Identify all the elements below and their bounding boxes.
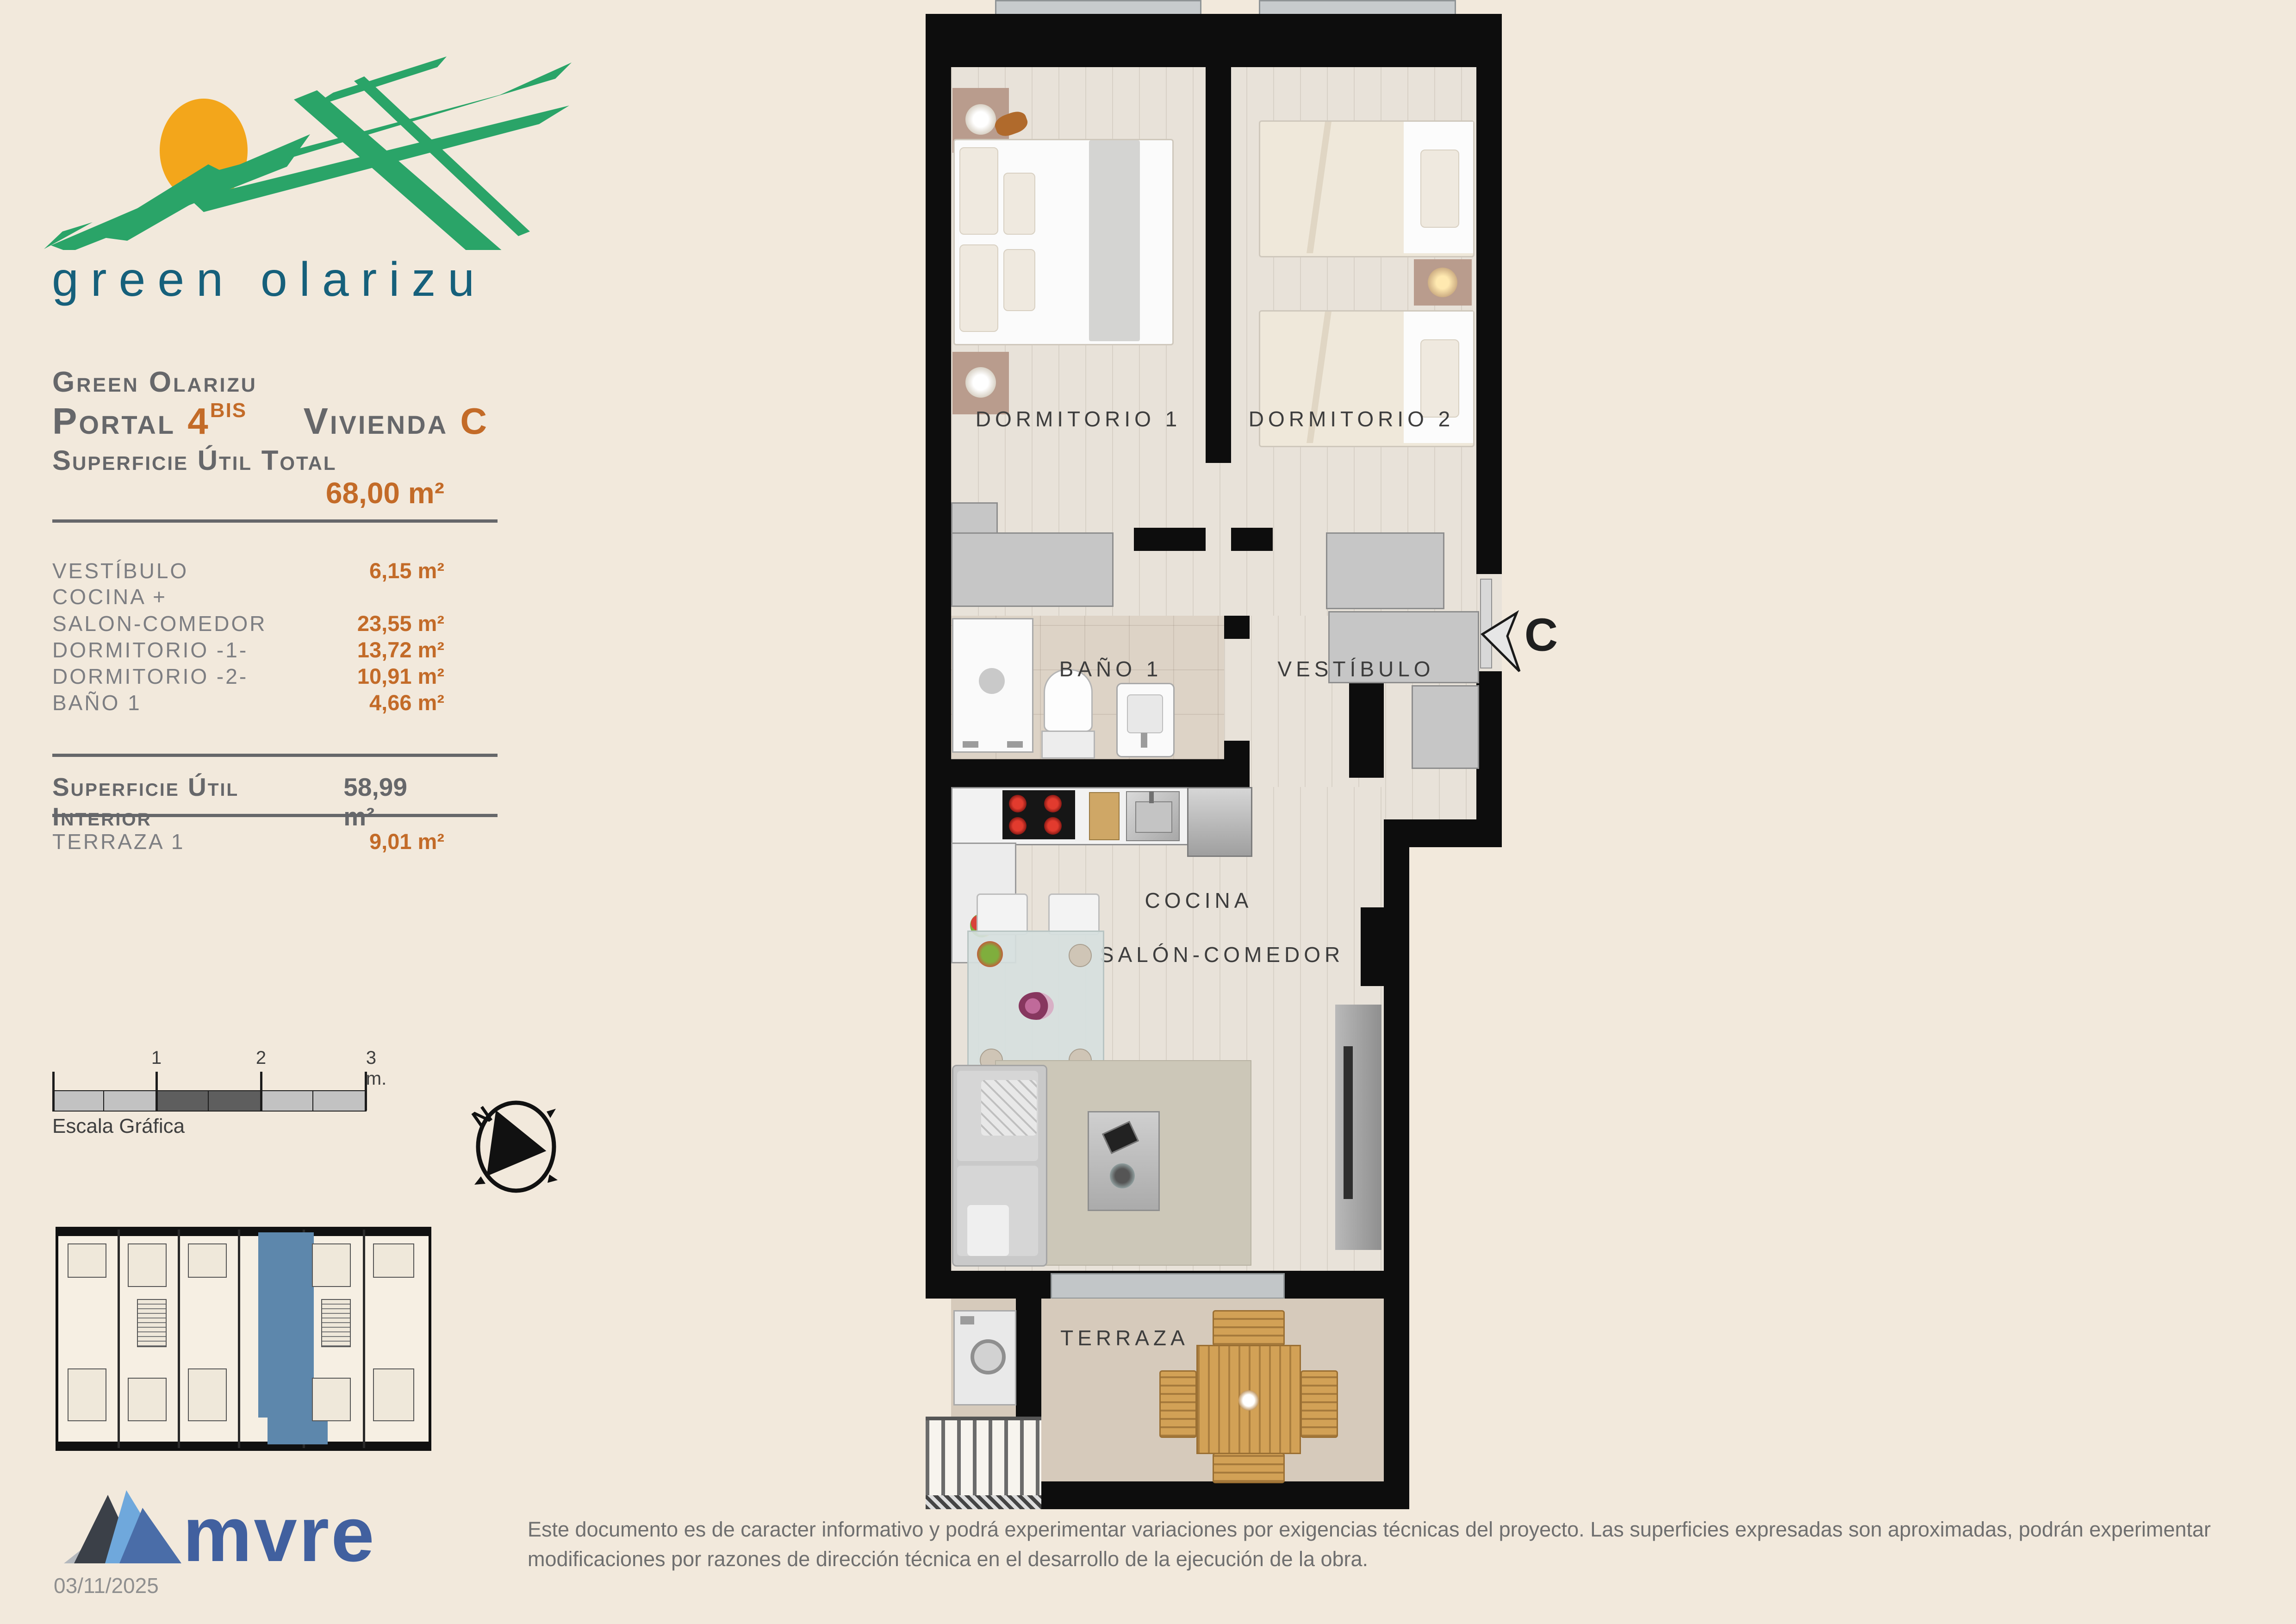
room-label-cocina: COCINA [1145, 888, 1253, 913]
surface-row: SALON-COMEDOR23,55 m² [52, 611, 444, 636]
terrace-chair [1213, 1453, 1285, 1483]
dining-chair [1048, 893, 1100, 935]
wall [1224, 741, 1250, 759]
wall [1476, 671, 1502, 819]
surface-total-value: 68,00 m² [259, 476, 444, 510]
washing-machine [953, 1310, 1016, 1405]
wall [1349, 676, 1384, 778]
scale-bar: 1 2 3 m. [52, 1072, 372, 1113]
terrace-chair [1213, 1310, 1285, 1346]
mvre-wordmark: mvre [183, 1490, 376, 1579]
portal-label: Portal [52, 400, 175, 442]
tv-unit [1335, 1005, 1381, 1250]
scale-tick-1: 1 [151, 1048, 162, 1068]
wall [1231, 528, 1273, 551]
terrace-chair [1159, 1370, 1197, 1438]
cushion [967, 1205, 1009, 1256]
mvre-logo-icon [60, 1488, 185, 1567]
wall [1384, 819, 1502, 847]
cutting-board [1089, 792, 1120, 840]
floorplan-sheet: { "colors":{"background":"#f2e9dc","acce… [0, 0, 2296, 1624]
room-label-dormitorio2: DORMITORIO 2 [1249, 406, 1455, 431]
wall [1016, 1481, 1409, 1509]
surface-interior-row: Superficie Útil Interior 58,99 m² [52, 772, 444, 831]
terrace-window [1051, 1273, 1285, 1299]
surface-terrace-row: TERRAZA 1 9,01 m² [52, 829, 444, 854]
divider [52, 519, 498, 523]
entrance-arrow-icon [1479, 610, 1530, 675]
wall [926, 14, 1502, 67]
room-label-terraza: TERRAZA [1060, 1325, 1189, 1350]
scale-caption: Escala Gráfica [52, 1115, 185, 1138]
plaid-blanket [981, 1080, 1037, 1136]
scale-tick-3: 3 m. [366, 1048, 386, 1089]
bowl [1110, 1163, 1135, 1188]
date: 03/11/2025 [54, 1573, 159, 1598]
wall [1384, 1299, 1409, 1509]
divider [52, 754, 498, 757]
portal-sup: BIS [210, 399, 247, 422]
dining-chair [977, 893, 1028, 935]
hall-cabinet [1412, 685, 1479, 769]
floor-plan: DORMITORIO 1 DORMITORIO 2 BAÑO 1 VESTÍBU… [926, 0, 1574, 1532]
surface-row: DORMITORIO -1-13,72 m² [52, 637, 444, 662]
wardrobe [1326, 532, 1444, 609]
wall-pillar [1361, 907, 1384, 986]
terrace-chair [1300, 1370, 1338, 1438]
coffee-table [1088, 1111, 1160, 1211]
surface-row: COCINA + [52, 584, 444, 609]
wardrobe [951, 502, 998, 535]
divider [52, 814, 498, 817]
single-bed [1259, 120, 1475, 257]
portal-number: 4 [187, 400, 210, 442]
disclaimer-text: Este documento es de caracter informativ… [528, 1515, 2268, 1574]
wall [926, 759, 1250, 787]
wall [1134, 528, 1206, 551]
shower [952, 618, 1033, 753]
nightstand [952, 352, 1009, 414]
wall [1476, 14, 1502, 574]
vivienda-letter: C [460, 400, 489, 442]
surface-row: BAÑO 14,66 m² [52, 690, 444, 715]
compass: N [465, 1095, 567, 1197]
logo-wordmark: green olarizu [52, 252, 486, 307]
railing-base [926, 1495, 1041, 1509]
terrace-table [1196, 1345, 1301, 1454]
surface-row: VESTÍBULO6,15 m² [52, 558, 444, 583]
tv-screen [1344, 1046, 1353, 1199]
surface-total-label: Superficie Útil Total [52, 444, 337, 476]
highlighted-unit [258, 1232, 314, 1418]
scale-tick-2: 2 [256, 1048, 266, 1068]
hob [1002, 790, 1075, 839]
nightstand [1414, 259, 1472, 306]
sofa [952, 1065, 1047, 1267]
green-olarizu-logo-icon [37, 51, 579, 250]
flowers [1019, 992, 1054, 1020]
wall [1224, 616, 1250, 639]
dishwasher [1187, 787, 1252, 857]
room-label-vestibulo: VESTÍBULO [1277, 656, 1434, 681]
wall [1384, 847, 1409, 1271]
vivienda-label: Vivienda [304, 400, 448, 442]
wall [1206, 67, 1231, 463]
wall [926, 14, 951, 1299]
entrance-letter: C [1524, 609, 1558, 662]
kitchen-sink [1126, 791, 1180, 841]
key-plan [56, 1227, 431, 1451]
toilet-tank [1041, 731, 1095, 759]
balcony-railing [926, 1417, 1041, 1499]
room-label-dormitorio1: DORMITORIO 1 [976, 406, 1182, 431]
bathroom-sink [1116, 683, 1175, 757]
portal-line: Portal 4BIS Vivienda C [52, 399, 489, 443]
double-bed [953, 139, 1174, 345]
tablet [1102, 1121, 1139, 1154]
surface-row: DORMITORIO -2-10,91 m² [52, 663, 444, 689]
room-label-salon: SALÓN-COMEDOR [1100, 942, 1344, 967]
kitchen-counter [951, 787, 1190, 845]
project-title: Green Olarizu [52, 366, 257, 399]
wardrobe [951, 532, 1114, 607]
room-label-bano: BAÑO 1 [1059, 656, 1163, 681]
